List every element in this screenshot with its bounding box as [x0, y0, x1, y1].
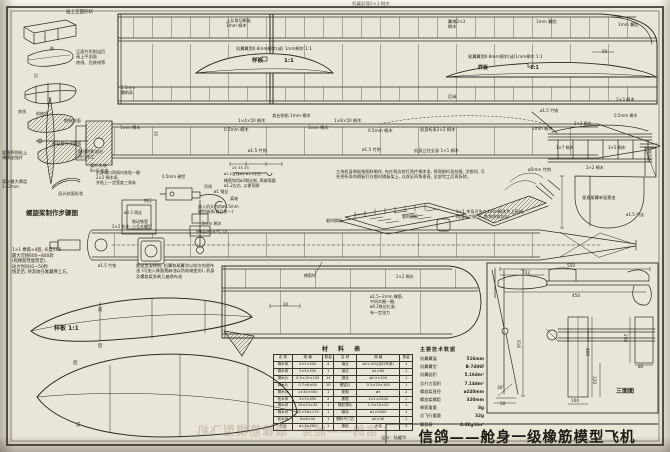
annotation-label: 80	[638, 364, 643, 369]
tech-data-value: 516mm	[467, 355, 484, 363]
annotation-label: 桨轴	[230, 196, 238, 201]
annotation-label: 2×2 桐木	[586, 165, 604, 170]
annotation-label: 橡筋钩	[304, 273, 316, 278]
material-table-cell: 0.7×8×80	[292, 382, 323, 389]
wing-plan	[118, 14, 657, 104]
material-table-cell: 22×36×170	[292, 410, 323, 417]
annotation-label: 100	[571, 398, 579, 403]
annotation-label: 制动铁管 小号木螺钉	[132, 219, 160, 229]
annotation-label: 机身端口四周内各贴一圈 2×2 桐木条, 并贴上一定宽度三角条	[96, 170, 158, 186]
tech-data-value: 32g	[475, 412, 484, 420]
tech-data-row: 机翼翼型B-7406f	[420, 363, 484, 371]
material-table-row: 桐木条2×2×5504钢丝ø2×100(自行车条)1	[274, 361, 413, 368]
material-table-cell: 桐木片	[274, 375, 293, 382]
annotation-label: 临时隔板	[326, 218, 342, 223]
material-table-cell: ø5	[357, 389, 400, 396]
annotation-label: 机身立柱全部 1×1 桐木	[414, 148, 459, 153]
annotation-label: 削制剖面	[64, 118, 81, 123]
annotation-label: 机身桁条2×2 桐木	[420, 127, 455, 132]
tech-data-row: 螺旋桨螺距320mm	[420, 396, 484, 404]
annotation-label: 2×3 桐木	[616, 97, 635, 102]
annotation-label: 尾翼翼肋0.8mm桐木(或)1mm桐木 1:1	[468, 54, 543, 59]
material-table-cell: 桐木片	[274, 389, 293, 396]
material-table-cell: 1	[323, 389, 334, 396]
annotation-label: 样板	[252, 58, 263, 65]
material-table-cell: 松木条	[274, 396, 293, 403]
material-table-cell: 名 称	[334, 355, 357, 362]
material-table-row: 松木条3×3×5502橡筋1×1×25001	[274, 396, 413, 403]
annotation-label: 前	[98, 308, 103, 314]
annotation-label: 后缘	[448, 94, 456, 99]
tech-data-value: 机翼面积	[420, 371, 437, 379]
annotation-label: ø1.5 竹销	[540, 108, 558, 113]
annotation-label: 其右侧贴 1mm 桐木	[272, 113, 311, 118]
material-table-row: 桐木片0.7×8×8010硬铝片0.5×20×1001	[274, 382, 413, 389]
material-table-cell: 14	[323, 375, 334, 382]
annotation-label: ø5mm 竹销	[528, 167, 551, 172]
material-table-cell: 1	[400, 410, 413, 417]
material-table-cell: 橡筋	[334, 396, 357, 403]
stabilizer-plan	[222, 266, 481, 338]
material-table-cell: 1	[400, 382, 413, 389]
annotation-label: ø0.3 铜丝	[124, 210, 142, 215]
tech-data-value: 螺旋桨直径	[420, 388, 441, 396]
annotation-label: 1mm 翼肋	[536, 19, 557, 24]
tech-data-value: 7.14dm²	[464, 380, 484, 388]
annotation-label: 1mm 桐木	[308, 125, 329, 130]
material-table-row: 桐木片1×30×5501垫圈ø52	[274, 389, 413, 396]
annotation-label: 120	[592, 376, 597, 384]
tech-data-value: 总升力面积	[420, 380, 441, 388]
material-table-cell: 1	[400, 403, 413, 410]
annotation-label: 吊线	[204, 184, 212, 189]
material-table-cell: 1	[400, 375, 413, 382]
material-table-cell: 10	[323, 382, 334, 389]
annotation-label: 嵌入机头内的ø0.5mm 硬铝轴承(前后各一)	[198, 204, 256, 214]
annotation-label: 翼梢2×3 桐木	[448, 19, 474, 30]
material-table-row: 桐木块22×36×1701蜡线ø1×50001	[274, 410, 413, 417]
annotation-label: 底线	[18, 109, 26, 114]
material-table: 名 称规 格数量名 称规 格数量桐木条2×2×5504钢丝ø2×100(自行车条…	[273, 354, 413, 431]
annotation-label: 三面图	[616, 388, 634, 396]
material-table-row: 桐木条2×3×5501钢丝ø1×801	[274, 368, 413, 375]
annotation-label: ø1.5 竹销	[98, 263, 116, 268]
material-table-cell: ø0.5×100	[357, 375, 400, 382]
annotation-label: 后	[98, 344, 103, 350]
material-table-cell: 铜丝	[334, 375, 357, 382]
material-table-cell: 数量	[400, 355, 413, 362]
material-table-cell: ø2×100(自行车条)	[357, 361, 400, 368]
material-table-row: 桐木片0.5×10×10014铜丝ø0.5×1001	[274, 375, 413, 382]
material-table-cell: 名 称	[274, 355, 293, 362]
annotation-label: 1mm 翼肋	[618, 22, 639, 27]
tech-data-value: 总飞行重量	[420, 412, 441, 420]
annotation-label: 1×1 橡筋×4股, 长度400 最大可绕600~800转 (视橡筋性能而定),…	[12, 248, 110, 276]
annotation-label: 机翼翼肋0.8mm桐木(或) 1mm桐木 1:1	[236, 46, 312, 51]
material-table-cell: 橡胶薄片	[334, 403, 357, 410]
annotation-label: 3×5 桐木	[608, 145, 626, 150]
scanned-model-aircraft-plan: 画上正面形状正面外形削出后 画上平剖面 棱线、后棱线等前后底线前棱线削制剖面紧贴…	[0, 0, 670, 452]
material-table-cell: 硬铝片	[334, 382, 357, 389]
annotation-label: 50	[500, 401, 505, 406]
tech-data-value: 橡筋重量	[420, 404, 437, 412]
annotation-label: 250	[623, 334, 628, 342]
material-table-cell: 1×1×2500	[357, 396, 400, 403]
annotation-label: 2mm 桐木	[202, 221, 222, 226]
annotation-label: 三块机身侧板按图样制作, 先在两边各钉两片桐木条, 将两根桁条刨直, 涂胶时, …	[336, 169, 488, 180]
annotation-label: 样板	[478, 65, 488, 72]
material-table-cell: 钢丝	[334, 368, 357, 375]
tech-data-row: 机翼面积5.16dm²	[420, 371, 484, 379]
material-table-cell: 1	[323, 403, 334, 410]
material-table-cell: 1	[323, 410, 334, 417]
annotation-label: 前棱线	[36, 111, 48, 116]
annotation-label: 样板 1:1	[54, 325, 79, 333]
tech-data-value: B-7406f	[466, 363, 484, 371]
annotation-label: 516	[516, 340, 521, 348]
annotation-label: 25 35 25	[232, 166, 249, 171]
annotation-label: 蒙皮用湿绵纸, 机翼和尾翼涂以较冷的透布油 (可加入微量蓖麻油以防收缩变形), …	[136, 263, 216, 279]
tech-data-row: 橡筋重量8g	[420, 404, 484, 412]
material-table-cell: 1	[400, 396, 413, 403]
annotation-label: 临时隔板	[402, 214, 418, 219]
material-table-cell: 1	[323, 368, 334, 375]
annotation-label: 142	[522, 270, 530, 275]
annotation-label: 垫高板	[647, 150, 652, 162]
material-table-title: 材 料 表	[273, 344, 413, 353]
annotation-label: 1:1	[530, 65, 539, 72]
annotation-label: 400	[585, 348, 590, 356]
annotation-label: ø1.5 竹销	[248, 148, 267, 153]
material-table-cell: 0.5×20×100	[357, 382, 400, 389]
tech-data-row: 机翼翼展516mm	[420, 355, 484, 363]
annotation-label: 0.5mm 桐木	[368, 128, 393, 133]
tech-rows: 机翼翼展516mm机翼翼型B-7406f机翼面积5.16dm²总升力面积7.14…	[420, 355, 484, 429]
annotation-label: 1mm 桐木	[120, 125, 141, 130]
annotation-label: 1:1	[284, 58, 294, 65]
material-table-cell: 桐木块	[274, 403, 293, 410]
material-table-cell: 2×3×550	[292, 368, 323, 375]
annotation-label: ø1.2左右 ø2 ø1.2左右	[224, 172, 261, 177]
annotation-label: 设计剖面形状	[58, 191, 83, 196]
annotation-label: 1×8×50 桐木	[334, 118, 361, 123]
material-table-cell: 桐木条	[274, 368, 293, 375]
annotation-label: 30	[283, 302, 288, 307]
material-table-row: 桐木块10×25×351橡胶薄片1.5×10×201	[274, 403, 413, 410]
tech-data-value: 320mm	[467, 396, 484, 404]
plan-title: 信鸽——舱身一级橡筋模型飞机	[398, 426, 656, 447]
material-table-cell: 桐木条	[274, 361, 293, 368]
material-table-cell: 蜡线	[334, 410, 357, 417]
material-table-cell: 桐木块	[274, 410, 293, 417]
tech-data-value: 5.16dm²	[464, 371, 484, 379]
annotation-label: ø1.5 竹销	[362, 147, 381, 152]
annotation-label: 2×3 桐木	[574, 121, 592, 126]
annotation-label: 桨叶最大厚度 1~2mm	[2, 179, 34, 190]
annotation-label: 550	[567, 263, 575, 268]
annotation-label: 2×2 松木	[112, 224, 130, 229]
annotation-label: 1mm 桐木	[532, 126, 553, 131]
annotation-label: 削除阴影部分 再行加工	[78, 149, 112, 160]
annotation-label: 450	[572, 293, 580, 298]
tech-data-panel: 主要技术数据 机翼翼展516mm机翼翼型B-7406f机翼面积5.16dm²总升…	[420, 346, 484, 429]
material-table-cell: 1.5×10×20	[357, 403, 400, 410]
material-table-cell: 1×30×550	[292, 389, 323, 396]
annotation-label: 1.5mm 翼梢条	[121, 85, 143, 95]
bleed-through-text: 信鸽——舱身一级橡筋模型飞机	[128, 422, 378, 439]
material-table-row: 名 称规 格数量名 称规 格数量	[274, 355, 413, 362]
annotation-label: 上反角切断处 1mm 桐木	[226, 18, 260, 29]
annotation-label: ø1 钢丝	[214, 189, 228, 194]
annotation-label: 50	[602, 49, 607, 54]
annotation-label: 热压	[144, 198, 152, 203]
tech-data-value: 机翼翼型	[420, 363, 437, 371]
material-table-cell: 1	[400, 361, 413, 368]
material-table-cell: ø1×80	[357, 368, 400, 375]
annotation-label: 画上正面形状	[66, 10, 93, 16]
annotation-label: 前	[76, 423, 81, 429]
material-table-cell: 2×2×550	[292, 361, 323, 368]
annotation-label: 1×7 桐木	[556, 145, 574, 150]
material-table-cell: 规 格	[292, 355, 323, 362]
material-table-cell: ø1×5000	[357, 410, 400, 417]
material-table-cell: 钢丝	[334, 361, 357, 368]
annotation-label: 0.5mm 硬铝	[162, 174, 185, 179]
annotation-label: ø1.5~2mm 橡筋, 中间木圈一圈, ø0.2铁丝扎紧, 有一定张力	[370, 294, 418, 315]
tech-data-row: 总升力面积7.14dm²	[420, 380, 484, 388]
material-table-cell: 桐木片	[274, 382, 293, 389]
annotation-label: 0.5mm 桐木	[614, 113, 637, 118]
material-table-cell: 0.5×10×100	[292, 375, 323, 382]
material-table-cell: 3×3×550	[292, 396, 323, 403]
material-table-cell: 4	[323, 361, 334, 368]
annotation-label: 35	[153, 131, 158, 136]
material-table-cell: 2	[323, 396, 334, 403]
annotation-label: 桨根两侧贴上 薄绸加强片	[2, 150, 32, 161]
tech-data-row: 螺旋桨直径ø240mm	[420, 388, 484, 396]
annotation-label: 垂直尾翼单面蒙皮	[582, 195, 626, 200]
annotation-label: 30°	[497, 385, 504, 390]
annotation-label: ø1.5 竹丝	[626, 212, 644, 217]
tech-data-value: 螺旋桨螺距	[420, 396, 441, 404]
annotation-label: 后	[73, 361, 78, 367]
tech-data-row: 总飞行重量32g	[420, 412, 484, 420]
material-table-cell: 数量	[323, 355, 334, 362]
annotation-label: 2×2 桐木	[396, 274, 414, 279]
material-table-cell: 1	[400, 417, 413, 424]
annotation-label: 紧贴桨叶成圆弧	[52, 141, 81, 146]
annotation-label: 塑料自行车气门芯	[196, 229, 228, 234]
material-table-cell: 规 格	[357, 355, 400, 362]
material-table-cell: 1	[400, 368, 413, 375]
tech-data-title: 主要技术数据	[420, 346, 484, 353]
tech-data-value: 8g	[478, 404, 484, 412]
annotation-label: 1×1 木条可先在1mm桐木片上画线, 再用小刀割下, 其木质较均匀	[456, 209, 560, 220]
annotation-label: 机翼前缘2×3 桐木	[352, 2, 390, 8]
annotation-label: 后	[34, 73, 38, 78]
tech-data-value: ø240mm	[464, 388, 484, 396]
tech-data-value: 机翼翼展	[420, 355, 437, 363]
material-table-cell: 2	[400, 389, 413, 396]
material-table-cell: 10×25×35	[292, 403, 323, 410]
material-table-cell: 垫圈	[334, 389, 357, 396]
annotation-label: 螺旋桨制作步骤图	[26, 209, 78, 217]
annotation-label: 前	[50, 46, 54, 51]
annotation-label: 橡筋钩用ø2钢丝制, 两端弯圆 ø1.2左右, 以便弯脚	[224, 178, 290, 188]
annotation-label: 0.5mm 桐木	[224, 127, 249, 132]
annotation-label: 1×4×50 桐木	[238, 118, 265, 123]
annotation-label: 正面外形削出后 画上平剖面 棱线、后棱线等	[76, 49, 114, 65]
